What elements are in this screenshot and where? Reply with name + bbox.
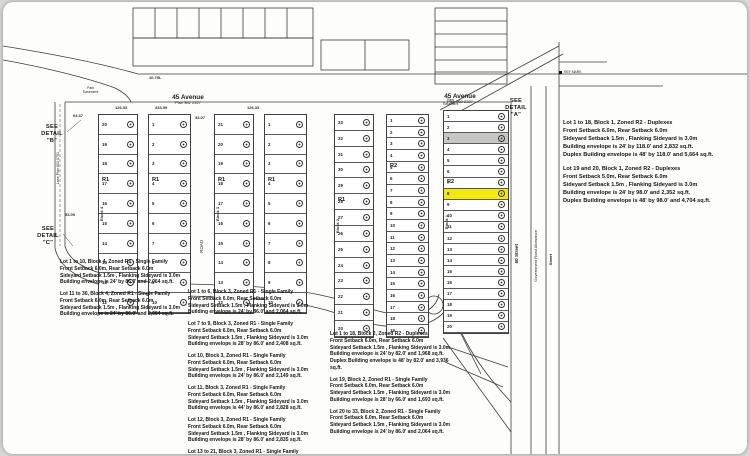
utility-circle-icon bbox=[363, 262, 370, 269]
lot-block2-east-10: 10 bbox=[387, 220, 428, 232]
lot-number: 32 bbox=[338, 136, 343, 141]
utility-circle-icon bbox=[127, 180, 134, 187]
lot-block2-east-15: 15 bbox=[387, 278, 428, 290]
lot-number: 4 bbox=[447, 147, 449, 152]
lot-block2-west-24: 24 bbox=[335, 258, 373, 274]
see-detail-b-callout: SEE DETAIL "B" bbox=[37, 124, 67, 145]
utility-circle-icon bbox=[418, 304, 425, 311]
lot-block3-west-20: 20 bbox=[215, 135, 253, 155]
note-paragraph: Lot 12, Block 3, Zoned R1 - Single Famil… bbox=[188, 417, 315, 444]
lot-number: 1 bbox=[152, 122, 154, 127]
lot-block4-east-5: 5 bbox=[149, 194, 190, 214]
utility-circle-icon bbox=[418, 222, 425, 229]
note-paragraph: Lot 13 to 21, Block 3, Zoned R1 - Single… bbox=[188, 449, 315, 454]
lot-number: 23 bbox=[338, 278, 343, 283]
utility-circle-icon bbox=[498, 146, 505, 153]
dimension-label: 33.07 bbox=[195, 115, 205, 120]
lot-number: 14 bbox=[102, 241, 107, 246]
lot-number: 12 bbox=[447, 236, 452, 241]
utility-circle-icon bbox=[498, 201, 505, 208]
dimension-label: 64.37 bbox=[73, 113, 83, 118]
lot-block2-east-4: 4 bbox=[387, 150, 428, 162]
see-detail-c-callout: SEE DETAIL "C" bbox=[33, 226, 63, 247]
lot-block4-west-14: 14 bbox=[99, 234, 137, 254]
utility-circle-icon bbox=[296, 200, 303, 207]
note-paragraph: Lot 11 to 30, Block 4, Zoned R1 - Single… bbox=[60, 291, 190, 318]
lot-block4-east-1: 1 bbox=[149, 115, 190, 135]
lot-block3-west-16: 16 bbox=[215, 214, 253, 234]
utility-circle-icon bbox=[418, 280, 425, 287]
lot-strip-block2-east: 12345678910111213141516171819R2 bbox=[386, 114, 429, 338]
lot-number: 16 bbox=[390, 293, 395, 298]
lot-number: 3 bbox=[268, 161, 270, 166]
utility-circle-icon bbox=[180, 141, 187, 148]
lot-block2-west-31: 31 bbox=[335, 147, 373, 163]
lot-block3-west-15: 15 bbox=[215, 234, 253, 254]
lot-number: 6 bbox=[447, 169, 449, 174]
lot-number: 20 bbox=[102, 122, 107, 127]
lot-block3-west-17: 17 bbox=[215, 194, 253, 214]
lot-block4-east-6: 6 bbox=[149, 214, 190, 234]
lot-number: 24 bbox=[338, 263, 343, 268]
utility-circle-icon bbox=[498, 301, 505, 308]
lot-strip-block2-west: 3332313029282726252423222120R1Block 2 bbox=[334, 114, 374, 338]
zone-label-r1: R1 bbox=[218, 177, 225, 183]
utility-circle-icon bbox=[180, 200, 187, 207]
lot-number: 14 bbox=[447, 258, 452, 263]
lot-block1-2: 2 bbox=[444, 122, 508, 133]
utility-circle-icon bbox=[418, 175, 425, 182]
zone-label-r2: R2 bbox=[447, 179, 454, 185]
plat-sheet: 20191817161514131211R1Block 412345678910… bbox=[3, 2, 747, 454]
utility-circle-icon bbox=[127, 220, 134, 227]
utility-circle-icon bbox=[363, 277, 370, 284]
lot-number: 2 bbox=[447, 125, 449, 130]
lot-number: 14 bbox=[218, 260, 223, 265]
utility-circle-icon bbox=[363, 198, 370, 205]
lot-block2-east-9: 9 bbox=[387, 208, 428, 220]
lot-number: 6 bbox=[152, 221, 154, 226]
utility-circle-icon bbox=[243, 220, 250, 227]
utility-circle-icon bbox=[363, 246, 370, 253]
street-label-government-road-allowance: Government Road Allowance bbox=[534, 230, 539, 282]
lot-block3-west-19: 19 bbox=[215, 155, 253, 175]
lot-block4-east-7: 7 bbox=[149, 234, 190, 254]
lot-block1-11: 11 bbox=[444, 222, 508, 233]
utility-circle-icon bbox=[418, 245, 425, 252]
lot-number: 21 bbox=[218, 122, 223, 127]
lot-block1-4: 4 bbox=[444, 144, 508, 155]
utility-circle-icon bbox=[498, 179, 505, 186]
street-label-45-avenue-right: 45 Avenue Plan 982 2327 bbox=[425, 85, 495, 113]
utility-circle-icon bbox=[498, 157, 505, 164]
utility-circle-icon bbox=[498, 257, 505, 264]
lot-strip-block3-east: 12345678910R1 bbox=[264, 114, 307, 314]
utility-circle-icon bbox=[418, 129, 425, 136]
utility-circle-icon bbox=[243, 279, 250, 286]
utility-circle-icon bbox=[363, 293, 370, 300]
lot-number: 15 bbox=[447, 269, 452, 274]
utility-circle-icon bbox=[363, 135, 370, 142]
utility-circle-icon bbox=[296, 141, 303, 148]
lot-number: 17 bbox=[447, 291, 452, 296]
utility-circle-icon bbox=[418, 269, 425, 276]
utility-circle-icon bbox=[127, 240, 134, 247]
lot-block1-6: 6 bbox=[444, 166, 508, 177]
dimension-label: 433.99 bbox=[155, 105, 167, 110]
note-paragraph: Lot 20 to 33, Block 2, Zoned R1 - Single… bbox=[330, 409, 457, 436]
lot-number: 4 bbox=[390, 153, 392, 158]
note-paragraph: Lot 1 to 18, Block 1, Zoned R2 - Duplexe… bbox=[563, 119, 745, 160]
utility-circle-icon bbox=[418, 187, 425, 194]
lot-number: 14 bbox=[390, 270, 395, 275]
utility-circle-icon bbox=[418, 257, 425, 264]
utility-circle-icon bbox=[498, 312, 505, 319]
lot-number: 15 bbox=[218, 241, 223, 246]
lot-number: 7 bbox=[390, 188, 392, 193]
lot-block2-west-26: 26 bbox=[335, 226, 373, 242]
lot-number: 15 bbox=[390, 281, 395, 286]
lot-block2-west-27: 27 bbox=[335, 210, 373, 226]
lot-number: 18 bbox=[102, 161, 107, 166]
utility-circle-icon bbox=[296, 220, 303, 227]
lot-block3-east-7: 7 bbox=[265, 234, 306, 254]
utility-circle-icon bbox=[296, 240, 303, 247]
lot-number: 9 bbox=[268, 280, 270, 285]
note-paragraph: Lot 1 to 10, Block 4, Zoned R1 - Single … bbox=[60, 259, 190, 286]
lot-number: 9 bbox=[447, 202, 449, 207]
utility-circle-icon bbox=[296, 259, 303, 266]
utility-circle-icon bbox=[418, 140, 425, 147]
lot-number: 18 bbox=[390, 316, 395, 321]
utility-circle-icon bbox=[180, 220, 187, 227]
lot-block2-east-16: 16 bbox=[387, 290, 428, 302]
lot-number: 9 bbox=[390, 211, 392, 216]
lot-number: 8 bbox=[390, 200, 392, 205]
zone-label-r1: R1 bbox=[338, 197, 345, 203]
utility-circle-icon bbox=[498, 246, 505, 253]
lot-block3-east-8: 8 bbox=[265, 254, 306, 274]
street-label-lane: Lane Plan 802 0751 bbox=[56, 152, 60, 184]
block-label: Block 3 bbox=[215, 207, 220, 221]
note-paragraph: Lot 11, Block 3, Zoned R1 - Single Famil… bbox=[188, 385, 315, 412]
lot-number: 1 bbox=[447, 114, 449, 119]
note-paragraph: Lot 7 to 9, Block 3, Zoned R1 - Single F… bbox=[188, 321, 315, 348]
lot-block1-18: 18 bbox=[444, 300, 508, 311]
zoning-notes-block2: Lot 1 to 18, Block 2, Zoned R2 - Duplexe… bbox=[330, 331, 457, 441]
utility-circle-icon bbox=[127, 160, 134, 167]
utility-circle-icon bbox=[296, 121, 303, 128]
plan-number: Plan 982 2327 bbox=[425, 100, 495, 105]
lot-block2-east-1: 1 bbox=[387, 115, 428, 127]
utility-circle-icon bbox=[498, 235, 505, 242]
zone-label-r1: R1 bbox=[152, 177, 159, 183]
utility-circle-icon bbox=[498, 279, 505, 286]
lot-block3-east-5: 5 bbox=[265, 194, 306, 214]
lot-strip-block1: 1234567891011121314151617181920R2Block 1 bbox=[443, 110, 509, 334]
street-label-street: Street bbox=[549, 254, 554, 265]
utility-circle-icon bbox=[498, 323, 505, 330]
lot-number: 15 bbox=[102, 221, 107, 226]
utility-circle-icon bbox=[363, 166, 370, 173]
lot-number: 3 bbox=[447, 136, 449, 141]
lot-number: 11 bbox=[390, 235, 395, 240]
zoning-notes-block1: Lot 1 to 18, Block 1, Zoned R2 - Duplexe… bbox=[563, 119, 745, 210]
lot-number: 31 bbox=[338, 152, 343, 157]
utility-circle-icon bbox=[498, 290, 505, 297]
utility-circle-icon bbox=[180, 240, 187, 247]
utility-circle-icon bbox=[363, 182, 370, 189]
lot-block4-east-3: 3 bbox=[149, 155, 190, 175]
lot-number: 18 bbox=[447, 302, 452, 307]
note-paragraph: Lot 19, Block 2, Zoned R1 - Single Famil… bbox=[330, 377, 457, 404]
utility-circle-icon bbox=[127, 200, 134, 207]
utility-circle-icon bbox=[418, 234, 425, 241]
utility-circle-icon bbox=[418, 199, 425, 206]
lot-block1-12: 12 bbox=[444, 233, 508, 244]
lot-number: 2 bbox=[390, 130, 392, 135]
lot-block4-west-18: 18 bbox=[99, 155, 137, 175]
utility-circle-icon bbox=[243, 121, 250, 128]
lot-number: 33 bbox=[338, 120, 343, 125]
lot-strip-block3-west: 21201918171615141312R1Block 3 bbox=[214, 114, 254, 314]
lot-number: 17 bbox=[218, 201, 223, 206]
dimension-label: 126.33 bbox=[115, 105, 127, 110]
note-paragraph: Lot 1 to 6, Block 3, Zoned R1 - Single F… bbox=[188, 289, 315, 316]
lot-block3-west-14: 14 bbox=[215, 254, 253, 274]
lot-number: 13 bbox=[447, 247, 452, 252]
utility-circle-icon bbox=[243, 141, 250, 148]
utility-circle-icon bbox=[243, 160, 250, 167]
lot-block4-west-15: 15 bbox=[99, 214, 137, 234]
lot-block1-3: 3 bbox=[444, 133, 508, 144]
street-label-road: ROAD bbox=[199, 240, 204, 253]
utility-circle-icon bbox=[243, 259, 250, 266]
utility-circle-icon bbox=[127, 141, 134, 148]
utility-circle-icon bbox=[418, 164, 425, 171]
lot-block4-west-20: 20 bbox=[99, 115, 137, 135]
utility-circle-icon bbox=[498, 124, 505, 131]
utility-circle-icon bbox=[418, 210, 425, 217]
lot-block2-west-29: 29 bbox=[335, 178, 373, 194]
lot-block4-east-2: 2 bbox=[149, 135, 190, 155]
utility-circle-icon bbox=[180, 180, 187, 187]
utility-circle-icon bbox=[498, 135, 505, 142]
park-easement-note-left: Park Easement bbox=[83, 86, 98, 94]
lot-block3-east-6: 6 bbox=[265, 214, 306, 234]
utility-circle-icon bbox=[180, 160, 187, 167]
lot-block1-9: 9 bbox=[444, 200, 508, 211]
lot-block1-19: 19 bbox=[444, 311, 508, 322]
utility-circle-icon bbox=[498, 223, 505, 230]
note-paragraph: Lot 19 and 20, Block 1, Zoned R2 - Duple… bbox=[563, 165, 745, 206]
lot-block1-17: 17 bbox=[444, 289, 508, 300]
lot-number: 1 bbox=[268, 122, 270, 127]
block-label: Block 2 bbox=[335, 219, 340, 233]
street-label-50-street: 50 Street bbox=[514, 244, 520, 263]
utility-circle-icon bbox=[418, 292, 425, 299]
lot-number: 6 bbox=[268, 221, 270, 226]
lot-number: 19 bbox=[102, 142, 107, 147]
utility-circle-icon bbox=[243, 240, 250, 247]
lot-block2-west-25: 25 bbox=[335, 242, 373, 258]
note-paragraph: Lot 1 to 18, Block 2, Zoned R2 - Duplexe… bbox=[330, 331, 457, 372]
lot-number: 2 bbox=[152, 142, 154, 147]
utility-circle-icon bbox=[363, 151, 370, 158]
lot-number: 12 bbox=[390, 246, 395, 251]
lot-block2-west-30: 30 bbox=[335, 163, 373, 179]
lot-number: 25 bbox=[338, 247, 343, 252]
utility-circle-icon bbox=[418, 117, 425, 124]
utility-circle-icon bbox=[498, 268, 505, 275]
lot-number: 3 bbox=[152, 161, 154, 166]
lot-block2-east-12: 12 bbox=[387, 243, 428, 255]
note-paragraph: Lot 10, Block 3, Zoned R1 - Single Famil… bbox=[188, 353, 315, 380]
lot-block2-east-17: 17 bbox=[387, 302, 428, 314]
lot-block2-east-2: 2 bbox=[387, 127, 428, 139]
zone-label-r1: R1 bbox=[268, 177, 275, 183]
lot-block1-5: 5 bbox=[444, 155, 508, 166]
utility-circle-icon bbox=[243, 180, 250, 187]
lot-number: 1 bbox=[390, 118, 392, 123]
lot-number: 10 bbox=[390, 223, 395, 228]
block-label: Block 1 bbox=[444, 215, 449, 229]
lot-block2-east-14: 14 bbox=[387, 267, 428, 279]
utility-circle-icon bbox=[498, 212, 505, 219]
see-detail-a-callout: SEE DETAIL "A" bbox=[501, 98, 531, 119]
lot-block3-west-21: 21 bbox=[215, 115, 253, 135]
lot-number: 16 bbox=[102, 201, 107, 206]
lot-number: 20 bbox=[447, 324, 452, 329]
lot-block3-east-1: 1 bbox=[265, 115, 306, 135]
lot-block2-west-21: 21 bbox=[335, 305, 373, 321]
lot-number: 6 bbox=[390, 176, 392, 181]
lot-number: 5 bbox=[268, 201, 270, 206]
lot-block2-east-11: 11 bbox=[387, 232, 428, 244]
lot-block2-east-7: 7 bbox=[387, 185, 428, 197]
utility-circle-icon bbox=[363, 119, 370, 126]
park-easement-note-right: Park Easement bbox=[443, 98, 458, 106]
lot-number: 8 bbox=[268, 260, 270, 265]
lot-number: 17 bbox=[390, 305, 395, 310]
lot-block2-west-33: 33 bbox=[335, 115, 373, 131]
lot-number: 22 bbox=[338, 294, 343, 299]
lot-number: 16 bbox=[447, 280, 452, 285]
lot-block1-14: 14 bbox=[444, 255, 508, 266]
utility-circle-icon bbox=[363, 214, 370, 221]
lot-number: 30 bbox=[338, 167, 343, 172]
utility-circle-icon bbox=[296, 180, 303, 187]
utility-circle-icon bbox=[363, 309, 370, 316]
utility-circle-icon bbox=[296, 279, 303, 286]
utility-circle-icon bbox=[418, 315, 425, 322]
lot-number: 5 bbox=[447, 158, 449, 163]
utility-circle-icon bbox=[180, 121, 187, 128]
lot-block1-15: 15 bbox=[444, 266, 508, 277]
lot-number: 7 bbox=[152, 241, 154, 246]
lot-number: 29 bbox=[338, 183, 343, 188]
lot-block3-east-3: 3 bbox=[265, 155, 306, 175]
lot-number: 13 bbox=[390, 258, 395, 263]
lot-block2-east-8: 8 bbox=[387, 197, 428, 209]
lot-block3-east-2: 2 bbox=[265, 135, 306, 155]
utility-circle-icon bbox=[418, 152, 425, 159]
zone-label-r2: R2 bbox=[390, 163, 397, 169]
lot-block2-east-6: 6 bbox=[387, 173, 428, 185]
dimension-label: 126.33 bbox=[247, 105, 259, 110]
lot-number: 8 bbox=[447, 191, 449, 196]
lot-number: 2 bbox=[268, 142, 270, 147]
lot-block2-west-23: 23 bbox=[335, 273, 373, 289]
dimension-label: 10.75L bbox=[149, 75, 161, 80]
lot-block4-west-19: 19 bbox=[99, 135, 137, 155]
block-label: Block 4 bbox=[99, 207, 104, 221]
lot-number: 19 bbox=[218, 161, 223, 166]
utility-circle-icon bbox=[498, 168, 505, 175]
lot-block1-13: 13 bbox=[444, 244, 508, 255]
zoning-notes-block4: Lot 1 to 10, Block 4, Zoned R1 - Single … bbox=[60, 259, 190, 323]
utility-circle-icon bbox=[296, 160, 303, 167]
utility-circle-icon bbox=[127, 121, 134, 128]
zone-label-r1: R1 bbox=[102, 177, 109, 183]
lot-number: 7 bbox=[268, 241, 270, 246]
survey-marker-label: REF MARK bbox=[564, 70, 582, 74]
dimension-label: 53.09 bbox=[65, 212, 75, 217]
lot-number: 5 bbox=[152, 201, 154, 206]
lot-number: 13 bbox=[218, 280, 223, 285]
lot-number: 21 bbox=[338, 310, 343, 315]
lot-block2-east-18: 18 bbox=[387, 313, 428, 325]
utility-circle-icon bbox=[363, 230, 370, 237]
lot-number: 19 bbox=[447, 313, 452, 318]
lot-number: 20 bbox=[218, 142, 223, 147]
zoning-notes-block3: Lot 1 to 6, Block 3, Zoned R1 - Single F… bbox=[188, 289, 315, 454]
lot-block2-east-13: 13 bbox=[387, 255, 428, 267]
lot-block2-west-32: 32 bbox=[335, 131, 373, 147]
lot-number: 3 bbox=[390, 141, 392, 146]
lot-block2-west-22: 22 bbox=[335, 289, 373, 305]
survey-marker-icon bbox=[559, 71, 562, 74]
lot-block1-8[interactable]: 8 bbox=[444, 189, 508, 200]
utility-circle-icon bbox=[243, 200, 250, 207]
lot-block4-west-16: 16 bbox=[99, 194, 137, 214]
lot-block1-10: 10 bbox=[444, 211, 508, 222]
lot-number: 16 bbox=[218, 221, 223, 226]
lot-block2-east-3: 3 bbox=[387, 138, 428, 150]
utility-circle-icon bbox=[498, 190, 505, 197]
lot-block1-16: 16 bbox=[444, 277, 508, 288]
